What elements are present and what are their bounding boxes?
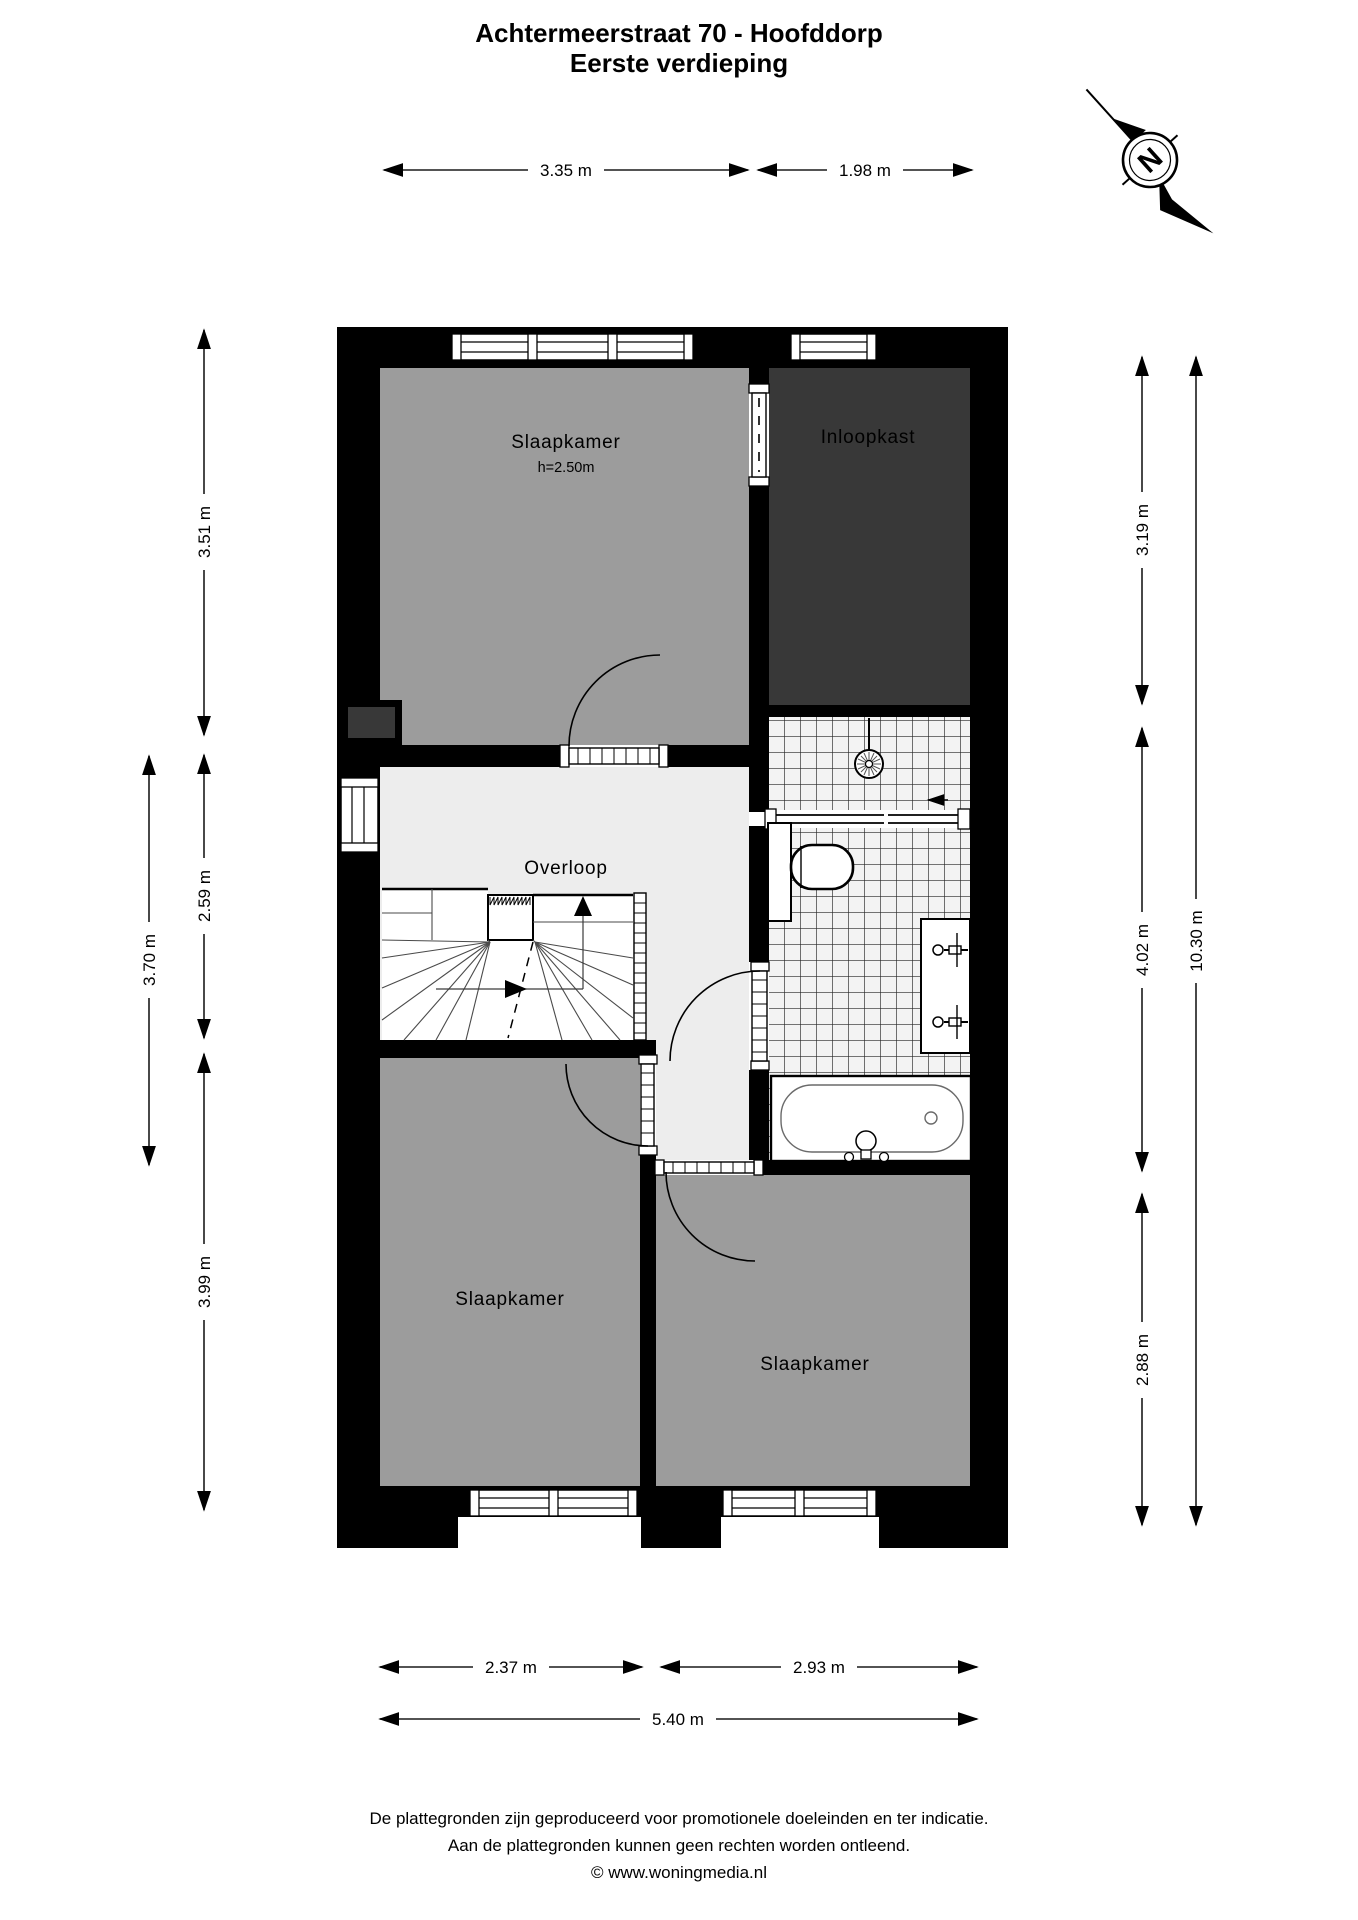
svg-text:2.93 m: 2.93 m [793,1658,845,1677]
svg-text:5.40 m: 5.40 m [652,1710,704,1729]
room-bedroom-top [380,368,749,745]
svg-text:3.70 m: 3.70 m [140,934,159,986]
svg-text:3.35 m: 3.35 m [540,161,592,180]
svg-text:10.30 m: 10.30 m [1187,910,1206,971]
duct-niche [340,700,402,745]
label-bedroom-top-ceiling: h=2.50m [538,460,595,476]
svg-text:1.98 m: 1.98 m [839,161,891,180]
dimension-right-outer: 10.30 m [1185,357,1207,1525]
svg-text:Aan de plattegronden kunnen ge: Aan de plattegronden kunnen geen rechten… [448,1836,910,1855]
window-top-bedroom [452,334,693,360]
label-landing: Overloop [524,858,608,879]
footer-disclaimer: De plattegronden zijn geproduceerd voor … [369,1809,988,1882]
svg-text:4.02 m: 4.02 m [1133,924,1152,976]
sink-icon [921,919,970,1053]
svg-text:© www.woningmedia.nl: © www.woningmedia.nl [591,1863,767,1882]
svg-text:De plattegronden zijn geproduc: De plattegronden zijn geproduceerd voor … [369,1809,988,1828]
room-bedroom-bottom-right [656,1175,970,1486]
floorplan-page: Achtermeerstraat 70 - Hoofddorp Eerste v… [0,0,1358,1920]
staircase [382,889,646,1040]
dimension-bottom-total: 5.40 m [380,1708,977,1730]
page-title: Achtermeerstraat 70 - Hoofddorp [475,18,882,48]
page-subtitle: Eerste verdieping [570,48,788,78]
stair-railing [634,893,646,1040]
label-bedroom-top: Slaapkamer [511,432,620,453]
svg-text:2.59 m: 2.59 m [195,870,214,922]
svg-text:3.99 m: 3.99 m [195,1256,214,1308]
dimension-right-lower: 2.88 m [1131,1194,1153,1525]
window-bedroom-bottom-right [723,1490,876,1516]
label-closet: Inloopkast [821,427,916,448]
dimension-right-middle: 4.02 m [1131,728,1153,1171]
svg-text:3.51 m: 3.51 m [195,506,214,558]
dimension-top-left: 3.35 m [384,159,748,181]
dimension-left-middle: 2.59 m [193,755,215,1038]
door-closet [749,384,769,486]
label-bedroom-bottom-left: Slaapkamer [455,1289,564,1310]
dimension-right-upper: 3.19 m [1131,357,1153,704]
floorplan-drawing: Achtermeerstraat 70 - Hoofddorp Eerste v… [0,0,1358,1920]
room-bedroom-bottom-left [380,1058,640,1486]
compass-icon: N [1059,65,1242,257]
label-bedroom-bottom-right: Slaapkamer [760,1354,869,1375]
dimension-bottom-right: 2.93 m [661,1656,977,1678]
svg-text:2.88 m: 2.88 m [1133,1334,1152,1386]
svg-text:2.37 m: 2.37 m [485,1658,537,1677]
bathtub-icon [771,1076,971,1162]
svg-text:3.19 m: 3.19 m [1133,504,1152,556]
dimension-bottom-left: 2.37 m [380,1656,642,1678]
dimension-left-outer: 3.70 m [138,756,160,1165]
dimension-top-right: 1.98 m [758,159,972,181]
dimension-left-lower: 3.99 m [193,1054,215,1510]
room-closet [769,368,970,705]
window-bedroom-bottom-left [470,1490,637,1516]
dimension-left-upper: 3.51 m [193,330,215,735]
window-closet [791,334,876,360]
window-landing [341,778,378,852]
